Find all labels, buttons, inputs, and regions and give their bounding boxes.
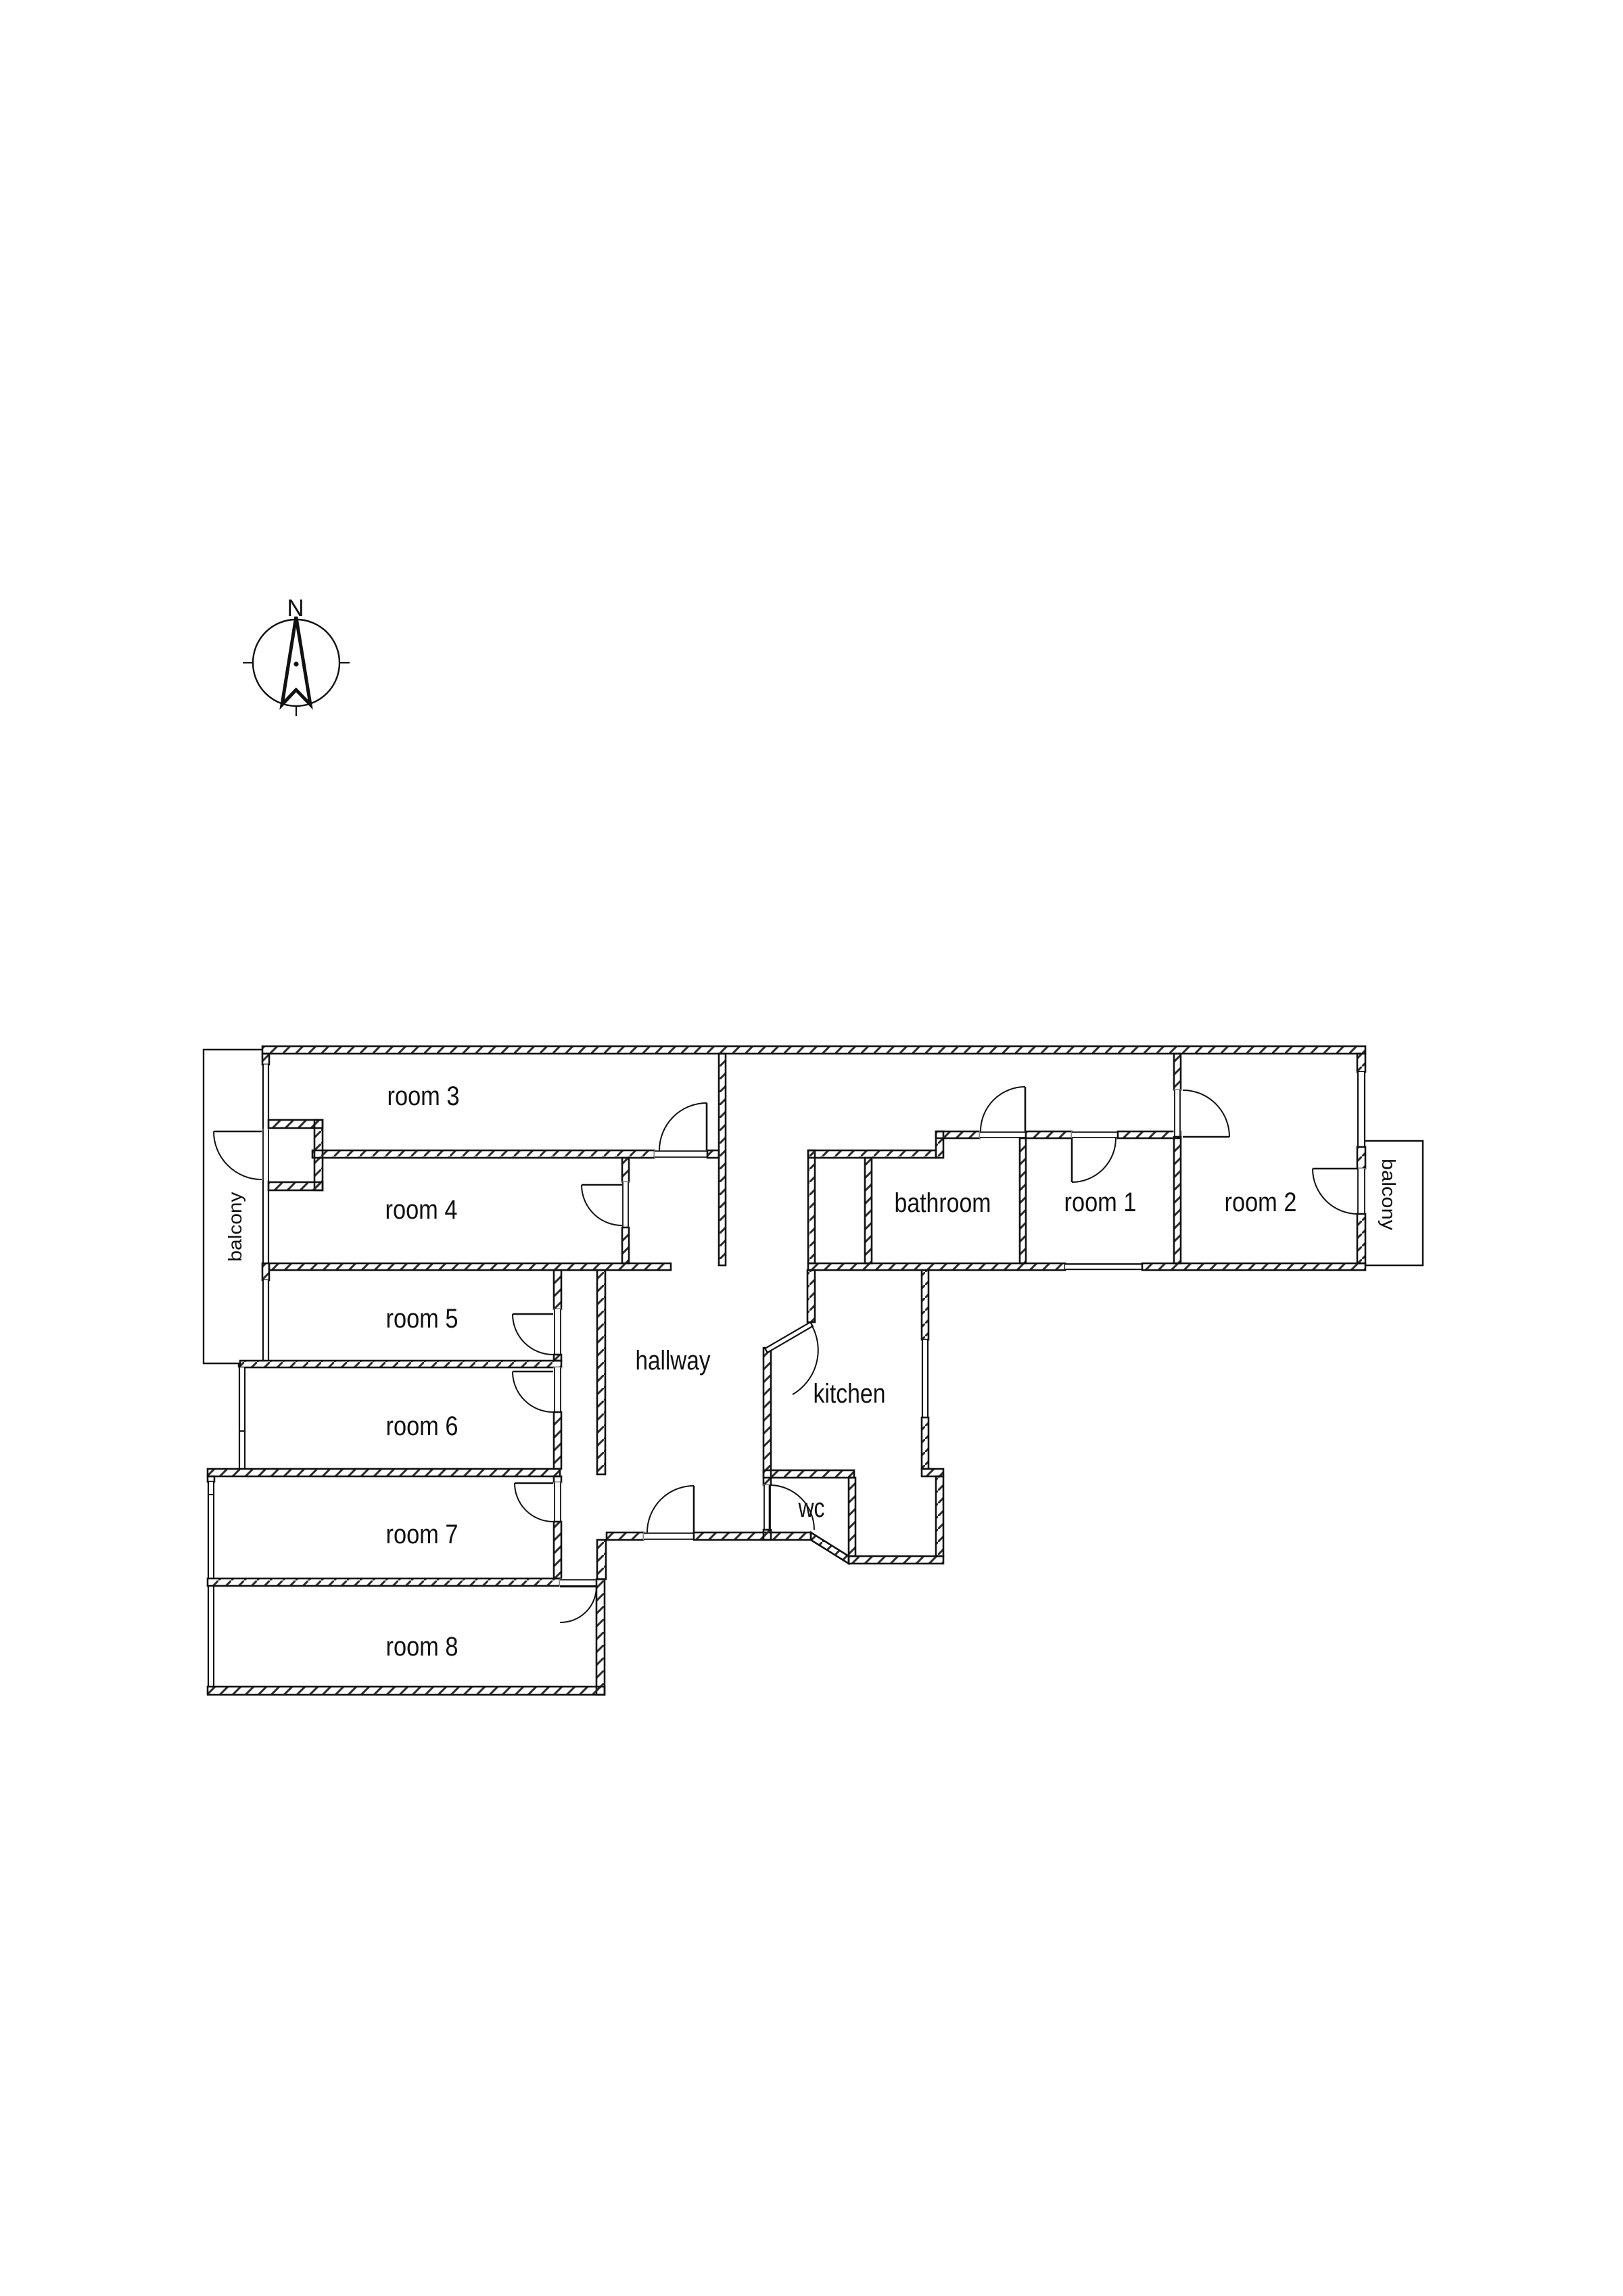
svg-text:hallway: hallway xyxy=(636,1346,711,1376)
svg-text:N: N xyxy=(287,595,304,622)
svg-text:room 3: room 3 xyxy=(387,1081,460,1111)
svg-text:room 5: room 5 xyxy=(386,1304,458,1334)
svg-text:room 2: room 2 xyxy=(1225,1188,1297,1217)
svg-text:wc: wc xyxy=(798,1493,825,1523)
svg-text:room 8: room 8 xyxy=(386,1632,458,1662)
svg-text:kitchen: kitchen xyxy=(814,1379,886,1409)
svg-text:room 6: room 6 xyxy=(386,1411,458,1441)
svg-text:room 7: room 7 xyxy=(386,1520,458,1549)
svg-text:room 1: room 1 xyxy=(1064,1188,1137,1217)
svg-text:balcony: balcony xyxy=(1378,1158,1399,1230)
svg-text:balcony: balcony xyxy=(225,1192,245,1262)
svg-text:bathroom: bathroom xyxy=(895,1188,991,1218)
svg-text:room 4: room 4 xyxy=(385,1195,458,1225)
